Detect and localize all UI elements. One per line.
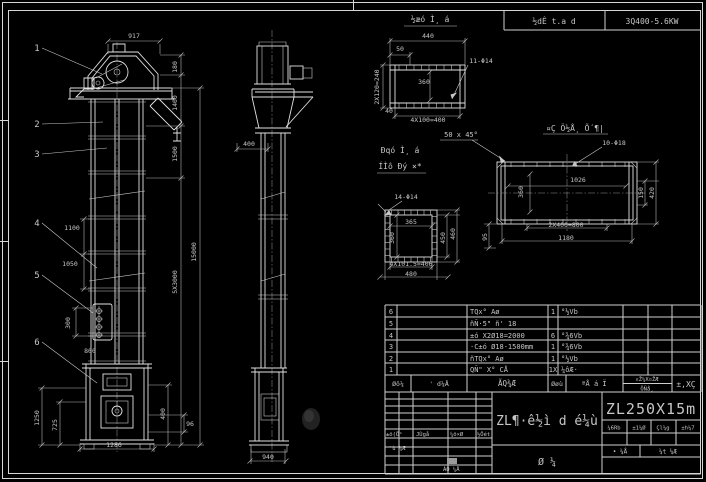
revision-header-cell: ±ö(Ö¹ <box>386 431 403 438</box>
header-strip: ½dÊ t.a d 3Q400-5.6KW <box>504 11 700 30</box>
square-flange-detail: Ðqó Ì¸ á ÍÌô Ðý ×* <box>377 144 437 262</box>
dimension-label: 95 <box>481 233 489 241</box>
rev-row3: ÀÕ ¼Å <box>443 466 460 473</box>
callout-number: 5 <box>34 271 39 281</box>
sheet-number-cell: ¼t ¼Æ <box>659 449 677 456</box>
bom-header-material: ªÅ á Ï <box>581 379 606 388</box>
title-info-cell: ±h¼7 <box>681 426 694 432</box>
bom-row-no: 1 <box>389 366 393 374</box>
bom-row-name: TQx° Aø <box>470 308 500 316</box>
bom-header-name: ÃQ¾Æ <box>498 379 517 388</box>
dimension-label: 15000 <box>190 242 198 262</box>
dimension-label: 400 <box>243 140 255 148</box>
dimension-label: 1050 <box>62 260 78 268</box>
dimension-label: 1100 <box>64 224 80 232</box>
bom-header-note: ±‚XÇ <box>676 380 695 389</box>
dimension-label: 1286 <box>106 441 122 449</box>
model-number: ZL250X15m <box>606 400 696 418</box>
dimension-label: 11-Φ14 <box>469 57 493 65</box>
dimension-label: 14-Φ14 <box>394 193 418 201</box>
dimension-label: 460 <box>449 228 457 240</box>
dimension-label: 1026 <box>570 176 586 184</box>
dimension-label: 1250 <box>33 410 41 426</box>
header-number-cell: 3Q400-5.6KW <box>626 17 679 26</box>
callout-number: 6 <box>34 338 39 348</box>
dimension-label: 300 <box>64 317 72 329</box>
bom-row-material: °¾6Vb <box>561 343 582 351</box>
bom-header-no: Øô¼ <box>392 380 404 388</box>
callout-number: 1 <box>34 44 39 54</box>
bom-row-no: 6 <box>389 308 393 316</box>
bom-header-code: ' d¼Å <box>429 379 449 388</box>
bom-row-no: 2 <box>389 355 393 363</box>
dim-line <box>42 275 93 313</box>
dimension-label: 725 <box>51 419 59 431</box>
bom-row-qty: 1 <box>551 355 555 363</box>
front-view <box>68 42 182 452</box>
bom-row-qty: 1X <box>549 366 558 374</box>
dimension-label: 180 <box>171 61 179 73</box>
bom-row-qty: 1 <box>551 308 555 316</box>
callout-number: 3 <box>34 150 39 160</box>
revision-header-cell: ¼ö×Ø <box>450 431 464 438</box>
side-view <box>249 30 313 462</box>
bom-row-material: °½Vb <box>561 308 578 316</box>
flange-detail-top: ½æó Ì¸ á <box>390 13 468 108</box>
bom-row-no: 4 <box>389 332 393 340</box>
dimension-label: 800 <box>84 347 96 355</box>
dimension-label: 400 <box>159 408 167 420</box>
bom-row-no: 5 <box>389 320 393 328</box>
dimension-label: 917 <box>128 32 140 40</box>
dimension-label: 150 <box>637 187 645 199</box>
dimension-label: 940 <box>262 453 274 461</box>
bom-row-qty: 1 <box>551 343 555 351</box>
dimension-label: 365 <box>405 218 417 226</box>
bom-row-qty: 6 <box>551 332 555 340</box>
revision-header-cell: ½Öét <box>477 431 490 438</box>
smudge <box>302 408 320 430</box>
bom-row-material: °½Vb <box>561 355 578 363</box>
title-info-cell: Çl¼g <box>656 426 669 432</box>
bom-row-material: °¾6Vb <box>561 332 582 340</box>
dimension-label: 96 <box>186 420 194 428</box>
bom-header-qty: Øøù <box>551 380 563 388</box>
drawing-name: ZL¶·ê½ì d é¼ù <box>496 414 598 429</box>
dimension-label: 360 <box>418 78 430 86</box>
callout-number: 2 <box>34 120 39 130</box>
callout-number: 4 <box>34 219 39 229</box>
detail-title: Ðqó Ì¸ á <box>381 144 420 155</box>
dimension-label: 360 <box>388 232 396 244</box>
chamfer-note: 50 x 45° <box>444 131 478 139</box>
drawing-type: Ø ¼ <box>538 456 556 468</box>
engineering-drawing: ½dÊ t.a d 3Q400-5.6KW <box>0 0 706 482</box>
dimension-label: 4X100=400 <box>410 116 445 124</box>
bom-row-name: ±ó X2Ø18=2000 <box>470 332 525 340</box>
rev-row2: 'ù ¼Æ <box>389 445 406 452</box>
cad-drawing-canvas: ½dÊ t.a d 3Q400-5.6KW <box>0 0 706 482</box>
dimension-label: 50 <box>396 45 404 53</box>
bom-row-name: QÑ" X° CÅ <box>470 365 509 374</box>
sheet-number-cell: • ¼Å <box>613 449 628 456</box>
detail-title: ÍÌô Ðý ×* <box>378 160 422 171</box>
dimension-label: 1400 <box>171 95 179 111</box>
dim-line <box>42 122 103 124</box>
dimension-label: 420 <box>648 187 656 199</box>
dimension-label: 440 <box>422 32 434 40</box>
detail-title: ¤Ç Ö½Å¸ Õ´¶| <box>546 122 604 133</box>
motor <box>257 46 288 84</box>
bom-row-name: ·C±ó Ø18-1500mm <box>470 343 533 351</box>
dimension-label: 5X3000 <box>171 270 179 294</box>
revision-header-cell: JÙgå <box>416 431 429 438</box>
bom-header-weight-total: ÖÑå¸ <box>640 386 653 393</box>
bom-row-name: ñÑ·5" ñ' 18 <box>470 319 516 328</box>
bom-row-name: ñTQx° Aø <box>470 355 505 363</box>
dimension-label: 1500 <box>171 146 179 162</box>
bom-row-no: 3 <box>389 343 393 351</box>
inspection-door <box>93 304 112 340</box>
header-title-cell: ½dÊ t.a d <box>532 15 576 26</box>
border-frame <box>0 0 703 479</box>
dim-line <box>42 48 102 74</box>
dim-line <box>42 148 107 154</box>
bom-row-material: ¼ôÆ· <box>561 366 578 374</box>
dimension-label: 450 <box>439 232 447 244</box>
detail-title: ½æó Ì¸ á <box>411 13 450 24</box>
highlight-cell <box>447 458 457 464</box>
dimension-label: 10-Φ18 <box>602 139 626 147</box>
bom-header-weight: ¤Ž¼X¤ŽÆ <box>635 375 659 383</box>
title-info-cell: ¼6Rb <box>607 426 620 432</box>
dimension-label: 360 <box>517 186 525 198</box>
dimension-label: 2X120=240 <box>373 69 381 104</box>
title-info-cell: ±1¼Ø <box>632 425 646 432</box>
